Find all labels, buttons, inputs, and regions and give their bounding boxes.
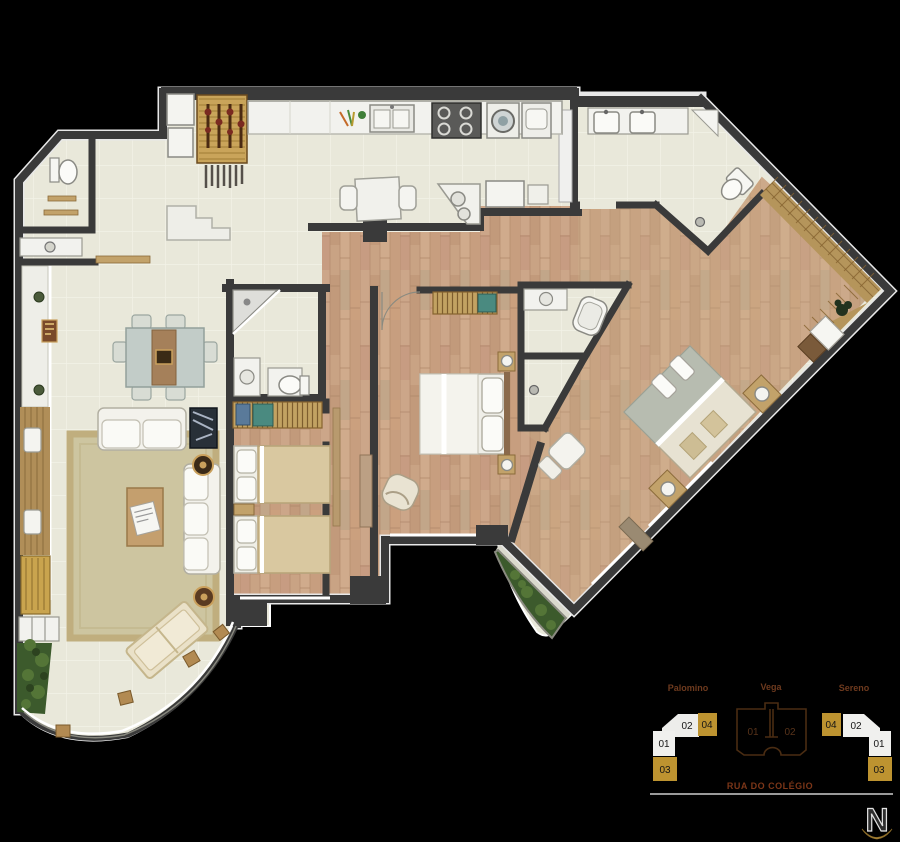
svg-text:N: N — [865, 802, 888, 838]
svg-text:Palomino: Palomino — [668, 683, 709, 693]
svg-text:01: 01 — [658, 739, 670, 750]
svg-text:02: 02 — [784, 727, 796, 738]
svg-text:01: 01 — [747, 727, 759, 738]
svg-text:04: 04 — [825, 720, 837, 731]
svg-text:Vega: Vega — [760, 682, 782, 692]
svg-text:03: 03 — [873, 765, 885, 776]
svg-text:Sereno: Sereno — [839, 683, 870, 693]
svg-text:02: 02 — [850, 721, 862, 732]
svg-text:01: 01 — [873, 739, 885, 750]
svg-text:03: 03 — [659, 765, 671, 776]
svg-text:04: 04 — [701, 720, 713, 731]
svg-text:RUA DO COLÉGIO: RUA DO COLÉGIO — [727, 781, 813, 791]
svg-text:02: 02 — [681, 721, 693, 732]
